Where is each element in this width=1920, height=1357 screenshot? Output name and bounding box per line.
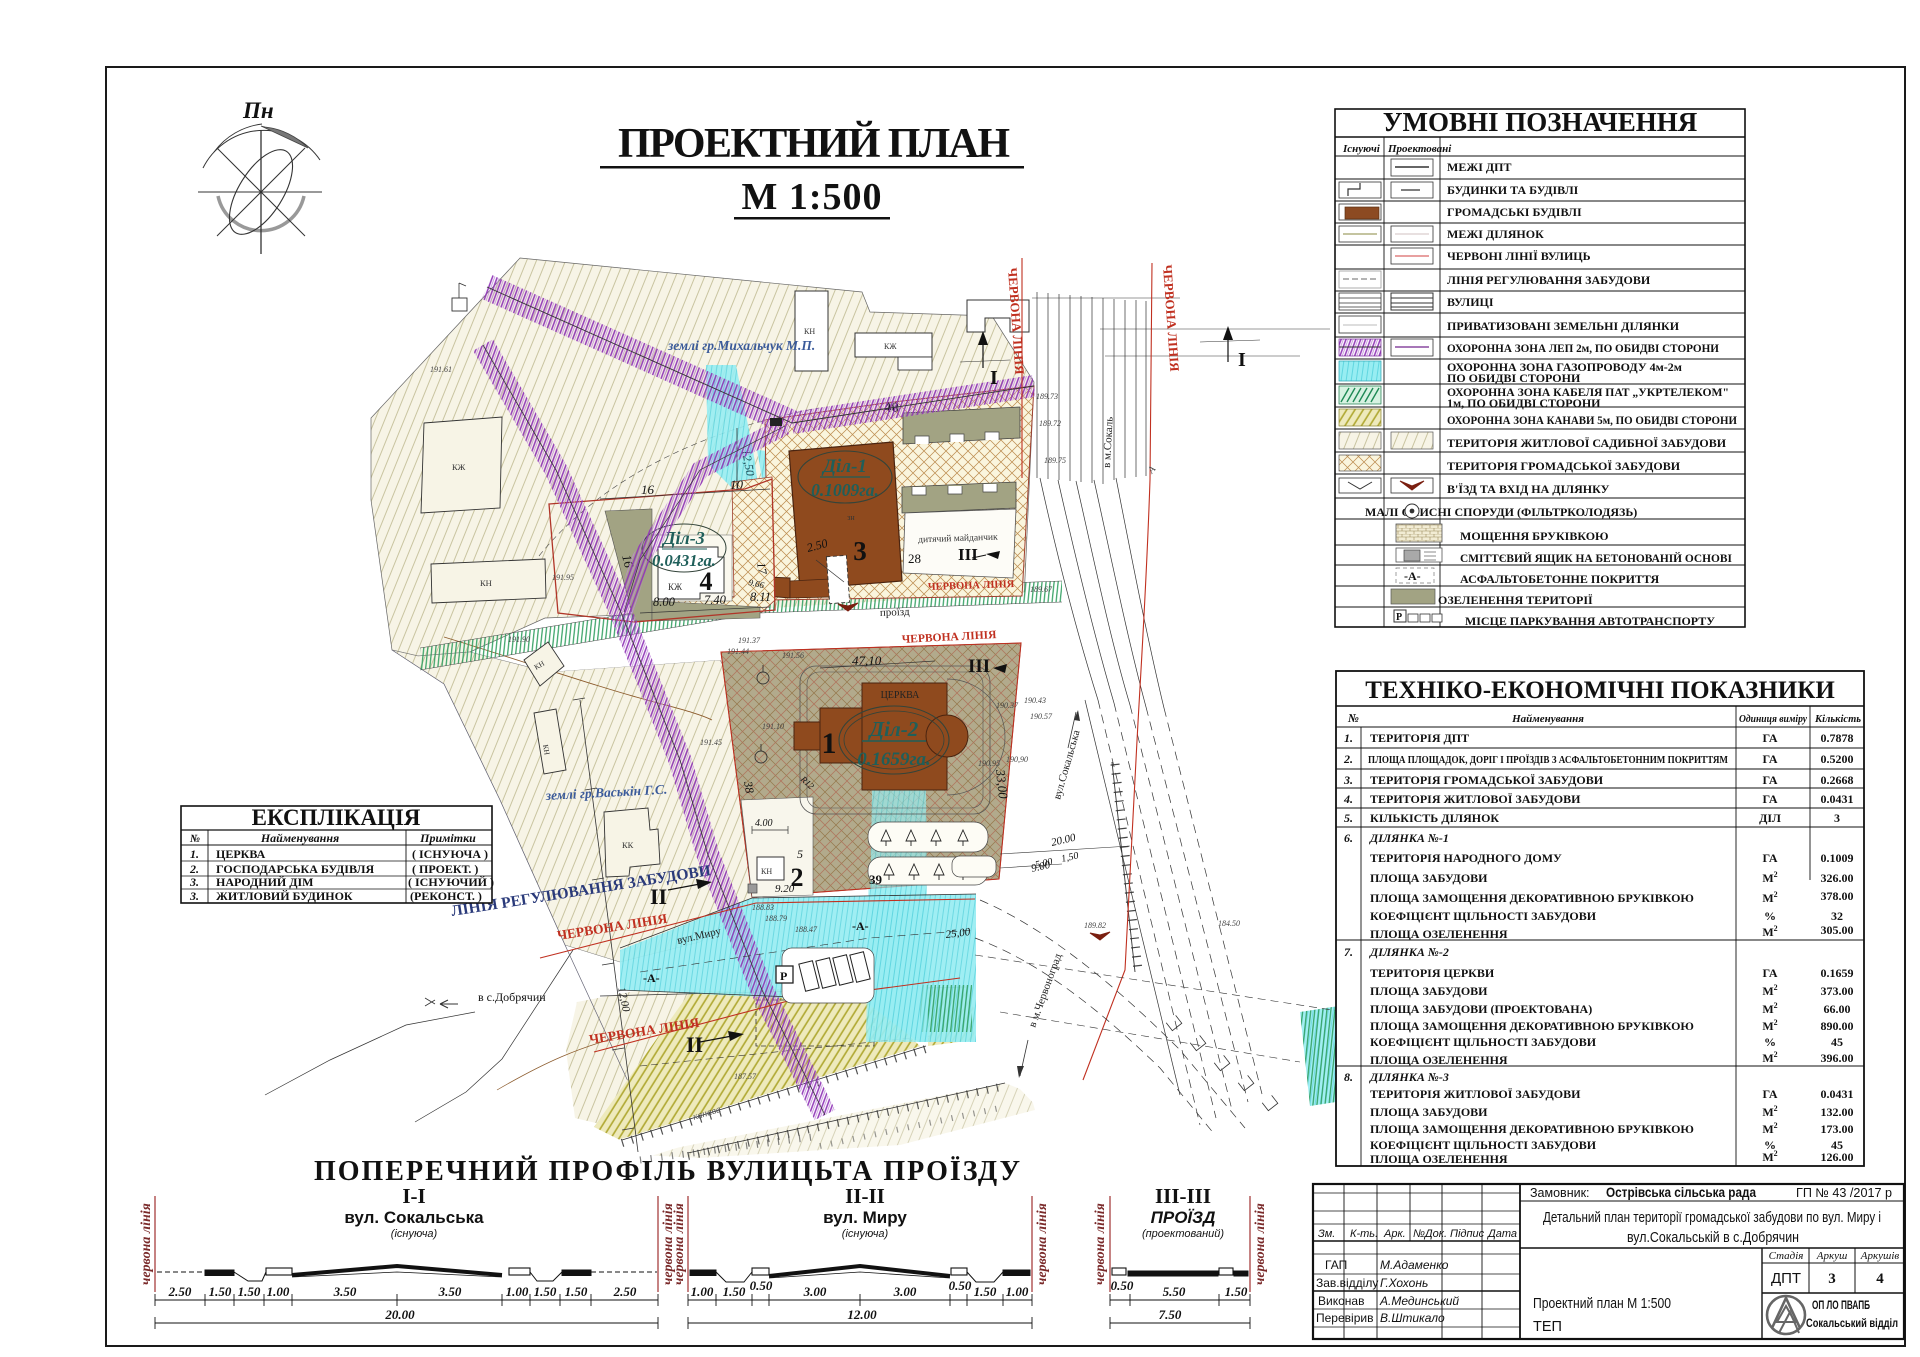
svg-text:5.: 5. xyxy=(1344,811,1353,825)
svg-text:К-ть.: К-ть. xyxy=(1350,1228,1378,1240)
svg-text:32: 32 xyxy=(1831,909,1843,923)
svg-text:189.67: 189.67 xyxy=(1030,585,1053,594)
svg-text:Острівська сільська рада: Острівська сільська рада xyxy=(1606,1184,1756,1200)
svg-text:1.50: 1.50 xyxy=(974,1284,997,1299)
svg-text:Зм.: Зм. xyxy=(1318,1228,1335,1240)
svg-text:-А-: -А- xyxy=(643,971,660,985)
svg-text:ПЛОЩА ЗАМОЩЕННЯ ДЕКОРАТИВНОЮ: ПЛОЩА ЗАМОЩЕННЯ ДЕКОРАТИВНОЮ БРУКІВКОЮ xyxy=(1370,1122,1694,1136)
svg-text:ІІІ: ІІІ xyxy=(968,656,990,677)
svg-text:191.45: 191.45 xyxy=(700,738,722,747)
svg-text:1.50: 1.50 xyxy=(565,1284,588,1299)
svg-text:ТЕРИТОРІЯ НАРОДНОГО ДОМУ: ТЕРИТОРІЯ НАРОДНОГО ДОМУ xyxy=(1370,851,1562,865)
svg-text:4: 4 xyxy=(1876,1271,1884,1287)
svg-text:ПРОЇЗД: ПРОЇЗД xyxy=(1151,1208,1216,1227)
svg-text:Діл-2: Діл-2 xyxy=(868,717,919,741)
svg-text:ТЕРИТОРІЯ ГРОМАДСЬКОЇ ЗАБУДОВ: ТЕРИТОРІЯ ГРОМАДСЬКОЇ ЗАБУДОВИ xyxy=(1447,459,1681,473)
svg-text:Г.Хохонь: Г.Хохонь xyxy=(1380,1276,1428,1290)
svg-text:191.37: 191.37 xyxy=(738,636,761,645)
svg-text:3: 3 xyxy=(853,536,867,566)
svg-text:188.79: 188.79 xyxy=(765,914,787,923)
svg-text:В'ЇЗД ТА ВХІД НА ДІЛЯНКУ: В'ЇЗД ТА ВХІД НА ДІЛЯНКУ xyxy=(1447,482,1610,496)
svg-text:червона лінія: червона лінія xyxy=(1253,1203,1268,1285)
svg-text:( ІСНУЮЧА ): ( ІСНУЮЧА ) xyxy=(412,847,488,861)
svg-text:5.50: 5.50 xyxy=(1163,1284,1186,1299)
svg-text:НАРОДНИЙ ДІМ: НАРОДНИЙ ДІМ xyxy=(216,875,314,889)
svg-text:1.00: 1.00 xyxy=(506,1284,529,1299)
svg-text:вул. Сокальська: вул. Сокальська xyxy=(344,1208,484,1227)
svg-text:(існуюча): (існуюча) xyxy=(842,1228,889,1240)
svg-text:39: 39 xyxy=(869,872,883,887)
svg-text:1.: 1. xyxy=(1344,731,1353,745)
svg-text:3.: 3. xyxy=(1343,773,1353,787)
svg-text:Діл-1: Діл-1 xyxy=(821,456,867,477)
svg-text:ЦЕРКВА: ЦЕРКВА xyxy=(881,690,921,701)
svg-text:СМІТТЄВИЙ ЯЩИК НА БЕТОНОВАНІЙ: СМІТТЄВИЙ ЯЩИК НА БЕТОНОВАНІЙ ОСНОВІ xyxy=(1460,551,1732,565)
svg-text:КК: КК xyxy=(622,840,634,850)
svg-text:І: І xyxy=(990,367,998,389)
svg-text:ЛІНІЯ РЕГУЛЮВАННЯ ЗАБУДОВИ: ЛІНІЯ РЕГУЛЮВАННЯ ЗАБУДОВИ xyxy=(1447,273,1651,287)
svg-text:191.90: 191.90 xyxy=(508,635,530,644)
svg-text:1.00: 1.00 xyxy=(691,1284,714,1299)
svg-text:ГА: ГА xyxy=(1763,792,1778,806)
svg-text:№Док.: №Док. xyxy=(1413,1228,1447,1240)
svg-text:КОЕФІЦІЄНТ ЩІЛЬНОСТІ ЗАБУДОВ: КОЕФІЦІЄНТ ЩІЛЬНОСТІ ЗАБУДОВИ xyxy=(1370,1035,1597,1049)
svg-text:УМОВНІ ПОЗНАЧЕННЯ: УМОВНІ ПОЗНАЧЕННЯ xyxy=(1383,107,1698,137)
svg-text:1.00: 1.00 xyxy=(267,1284,290,1299)
svg-text:Аркушів: Аркушів xyxy=(1860,1250,1900,1262)
svg-text:0.50: 0.50 xyxy=(1111,1278,1134,1293)
svg-text:Примітки: Примітки xyxy=(419,831,476,845)
svg-text:8.11: 8.11 xyxy=(750,590,771,604)
svg-text:ГА: ГА xyxy=(1763,731,1778,745)
svg-text:8.00: 8.00 xyxy=(653,595,676,609)
svg-text:Найменування: Найменування xyxy=(1511,713,1584,725)
svg-text:ТЕРИТОРІЯ ДПТ: ТЕРИТОРІЯ ДПТ xyxy=(1370,731,1469,745)
svg-text:190,90: 190,90 xyxy=(1006,755,1028,764)
svg-text:(проектований): (проектований) xyxy=(1142,1228,1224,1240)
svg-text:184.50: 184.50 xyxy=(1218,919,1240,928)
svg-text:191.10: 191.10 xyxy=(762,722,784,731)
svg-text:9.20: 9.20 xyxy=(775,883,795,895)
svg-text:КІЛЬКІСТЬ ДІЛЯНОК: КІЛЬКІСТЬ ДІЛЯНОК xyxy=(1370,811,1499,825)
svg-text:ІІ-ІІ: ІІ-ІІ xyxy=(845,1184,885,1208)
svg-text:ОХОРОННА ЗОНА ЛЕП 2м, ПО ОБИД: ОХОРОННА ЗОНА ЛЕП 2м, ПО ОБИДВІ СТОРОНИ xyxy=(1447,341,1720,355)
svg-text:1.00: 1.00 xyxy=(1006,1284,1029,1299)
svg-text:Р: Р xyxy=(780,969,787,983)
svg-text:ТЕРИТОРІЯ ГРОМАДСЬКОЇ ЗАБУДОВ: ТЕРИТОРІЯ ГРОМАДСЬКОЇ ЗАБУДОВИ xyxy=(1370,773,1604,787)
svg-text:( ІСНУЮЧИЙ ): ( ІСНУЮЧИЙ ) xyxy=(408,875,494,889)
svg-text:1м, ПО ОБИДВІ СТОРОНИ: 1м, ПО ОБИДВІ СТОРОНИ xyxy=(1447,396,1601,410)
svg-text:М.Адаменко: М.Адаменко xyxy=(1380,1258,1449,1272)
svg-text:ПОПЕРЕЧНИЙ ПРОФІЛЬ ВУЛИЦЬТА: ПОПЕРЕЧНИЙ ПРОФІЛЬ ВУЛИЦЬТА ПРОЇЗДУ xyxy=(314,1156,1022,1187)
svg-text:ПЛОЩА ОЗЕЛЕНЕННЯ: ПЛОЩА ОЗЕЛЕНЕННЯ xyxy=(1370,1152,1508,1166)
svg-text:ТЕХНІКО-ЕКОНОМІЧНІ ПОКАЗНИКИ: ТЕХНІКО-ЕКОНОМІЧНІ ПОКАЗНИКИ xyxy=(1365,677,1835,704)
svg-text:187.57: 187.57 xyxy=(734,1072,757,1081)
svg-text:ЦЕРКВА: ЦЕРКВА xyxy=(216,847,266,861)
svg-text:КОЕФІЦІЄНТ ЩІЛЬНОСТІ ЗАБУДОВ: КОЕФІЦІЄНТ ЩІЛЬНОСТІ ЗАБУДОВИ xyxy=(1370,909,1597,923)
svg-text:Пн: Пн xyxy=(242,98,274,123)
svg-text:3: 3 xyxy=(1828,1271,1836,1287)
svg-text:Виконав: Виконав xyxy=(1318,1294,1364,1308)
svg-text:0.1659: 0.1659 xyxy=(1821,966,1854,980)
svg-text:ДІЛЯНКА №-1: ДІЛЯНКА №-1 xyxy=(1369,831,1449,845)
svg-text:2.50: 2.50 xyxy=(168,1284,192,1299)
svg-text:ПО ОБИДВІ СТОРОНИ: ПО ОБИДВІ СТОРОНИ xyxy=(1447,371,1581,385)
svg-text:3.00: 3.00 xyxy=(803,1284,827,1299)
svg-text:3.50: 3.50 xyxy=(438,1284,462,1299)
svg-text:1.50: 1.50 xyxy=(723,1284,746,1299)
svg-text:ГА: ГА xyxy=(1763,966,1778,980)
svg-text:ЕКСПЛІКАЦІЯ: ЕКСПЛІКАЦІЯ xyxy=(252,805,421,830)
svg-text:190.43: 190.43 xyxy=(1024,696,1046,705)
svg-text:188.83: 188.83 xyxy=(752,903,774,912)
svg-text:ПЛОЩА ЗАБУДОВИ: ПЛОЩА ЗАБУДОВИ xyxy=(1370,871,1488,885)
svg-text:ПРИВАТИЗОВАНІ ЗЕМЕЛЬНІ ДІЛЯНКИ: ПРИВАТИЗОВАНІ ЗЕМЕЛЬНІ ДІЛЯНКИ xyxy=(1447,319,1680,333)
svg-text:А: А xyxy=(1145,463,1159,476)
svg-text:І-І: І-І xyxy=(402,1184,425,1208)
svg-text:4.00: 4.00 xyxy=(755,818,773,829)
svg-text:38: 38 xyxy=(741,779,757,794)
svg-text:вул.Сокальська: вул.Сокальська xyxy=(1051,729,1082,801)
svg-text:16: 16 xyxy=(641,482,655,497)
svg-text:ГП № 43 /2017 р: ГП № 43 /2017 р xyxy=(1796,1186,1892,1200)
svg-text:ПЛОЩА ЗАМОЩЕННЯ ДЕКОРАТИВНОЮ: ПЛОЩА ЗАМОЩЕННЯ ДЕКОРАТИВНОЮ БРУКІВКОЮ xyxy=(1370,1019,1694,1033)
svg-text:396.00: 396.00 xyxy=(1821,1051,1854,1065)
svg-text:Стадія: Стадія xyxy=(1769,1250,1804,1262)
svg-text:в м.Сокаль: в м.Сокаль xyxy=(1101,416,1116,468)
svg-text:6.: 6. xyxy=(1344,831,1353,845)
svg-text:Зав.відділу: Зав.відділу xyxy=(1316,1276,1378,1290)
svg-text:66.00: 66.00 xyxy=(1824,1002,1851,1016)
svg-text:0.5200: 0.5200 xyxy=(1821,752,1854,766)
svg-text:червона лінія: червона лінія xyxy=(139,1203,154,1285)
svg-text:ОП ЛО ПВАПБ: ОП ЛО ПВАПБ xyxy=(1812,1298,1870,1312)
svg-text:в с.Добрячин: в с.Добрячин xyxy=(478,990,546,1004)
svg-text:(існуюча): (існуюча) xyxy=(391,1228,438,1240)
svg-text:0.0431га.: 0.0431га. xyxy=(652,551,716,570)
svg-text:1.50: 1.50 xyxy=(534,1284,557,1299)
svg-text:%: % xyxy=(1764,1035,1776,1049)
svg-text:БУДИНКИ ТА БУДІВЛІ: БУДИНКИ ТА БУДІВЛІ xyxy=(1447,183,1579,197)
svg-text:47,10: 47,10 xyxy=(852,653,882,668)
svg-text:ТЕРИТОРІЯ ЦЕРКВИ: ТЕРИТОРІЯ ЦЕРКВИ xyxy=(1370,966,1495,980)
svg-text:373.00: 373.00 xyxy=(1821,984,1854,998)
svg-text:1.50: 1.50 xyxy=(238,1284,261,1299)
svg-text:%: % xyxy=(1764,909,1776,923)
svg-text:КН: КН xyxy=(804,327,815,336)
svg-text:ЧЕРВОНІ ЛІНІЇ ВУЛИЦЬ: ЧЕРВОНІ ЛІНІЇ ВУЛИЦЬ xyxy=(1447,249,1591,263)
svg-text:червона лінія: червона лінія xyxy=(672,1203,687,1285)
svg-text:( ПРОЕКТ. ): ( ПРОЕКТ. ) xyxy=(412,862,478,876)
svg-text:1: 1 xyxy=(822,727,837,760)
svg-text:ІІ: ІІ xyxy=(650,884,667,909)
svg-text:землі гр.Михальчук М.П.: землі гр.Михальчук М.П. xyxy=(667,338,815,353)
svg-text:ГА: ГА xyxy=(1763,752,1778,766)
svg-text:ОЗЕЛЕНЕННЯ ТЕРИТОРІЇ: ОЗЕЛЕНЕННЯ ТЕРИТОРІЇ xyxy=(1438,593,1593,607)
svg-text:ГАП: ГАП xyxy=(1325,1258,1347,1272)
svg-text:188.47: 188.47 xyxy=(795,925,818,934)
svg-text:ПЛОЩА ЗАМОЩЕННЯ ДЕКОРАТИВНОЮ: ПЛОЩА ЗАМОЩЕННЯ ДЕКОРАТИВНОЮ БРУКІВКОЮ xyxy=(1370,891,1694,905)
svg-text:Арк.: Арк. xyxy=(1383,1228,1406,1240)
svg-text:вул.Сокальській в с.Добрячин: вул.Сокальській в с.Добрячин xyxy=(1627,1230,1799,1246)
svg-text:190.57: 190.57 xyxy=(1030,712,1053,721)
svg-text:126.00: 126.00 xyxy=(1821,1150,1854,1164)
svg-text:132.00: 132.00 xyxy=(1821,1105,1854,1119)
svg-text:2.50: 2.50 xyxy=(613,1284,637,1299)
svg-text:0.1009: 0.1009 xyxy=(1821,851,1854,865)
svg-text:Дата: Дата xyxy=(1486,1228,1517,1240)
svg-text:ЖИТЛОВИЙ БУДИНОК: ЖИТЛОВИЙ БУДИНОК xyxy=(216,889,353,903)
svg-text:АСФАЛЬТОБЕТОННЕ ПОКРИТТЯ: АСФАЛЬТОБЕТОННЕ ПОКРИТТЯ xyxy=(1460,572,1659,586)
svg-text:Проектовані: Проектовані xyxy=(1387,143,1452,155)
svg-text:1,50: 1,50 xyxy=(1060,850,1080,865)
svg-text:ПЛОЩА ОЗЕЛЕНЕННЯ: ПЛОЩА ОЗЕЛЕНЕННЯ xyxy=(1370,927,1508,941)
svg-text:0.1659га.: 0.1659га. xyxy=(857,749,931,770)
svg-text:190.95: 190.95 xyxy=(978,759,1000,768)
svg-text:1.: 1. xyxy=(190,847,199,861)
svg-text:ПЛОЩА ЗАБУДОВИ (ПРОЕКТОВАНА: ПЛОЩА ЗАБУДОВИ (ПРОЕКТОВАНА) xyxy=(1370,1002,1592,1016)
svg-text:Одиниця виміру: Одиниця виміру xyxy=(1739,714,1808,725)
svg-text:Замовник:: Замовник: xyxy=(1530,1186,1590,1200)
svg-text:ГА: ГА xyxy=(1763,1087,1778,1101)
svg-text:проїзд: проїзд xyxy=(880,606,910,619)
svg-text:4: 4 xyxy=(700,567,713,596)
svg-text:КН: КН xyxy=(761,867,772,876)
svg-text:326.00: 326.00 xyxy=(1821,871,1854,885)
svg-text:Проектний план М 1:500: Проектний план М 1:500 xyxy=(1533,1296,1671,1312)
svg-text:І: І xyxy=(1238,349,1246,371)
svg-text:Перевірив: Перевірив xyxy=(1316,1311,1373,1325)
svg-text:3.: 3. xyxy=(189,889,199,903)
svg-text:ПЛОЩА ЗАБУДОВИ: ПЛОЩА ЗАБУДОВИ xyxy=(1370,1105,1488,1119)
svg-text:0.0431: 0.0431 xyxy=(1821,792,1854,806)
svg-text:МЕЖІ ДІЛЯНОК: МЕЖІ ДІЛЯНОК xyxy=(1447,227,1544,241)
svg-text:1.50: 1.50 xyxy=(209,1284,232,1299)
svg-text:3: 3 xyxy=(1834,811,1840,825)
svg-text:7.40: 7.40 xyxy=(704,593,727,607)
svg-text:20.00: 20.00 xyxy=(1050,832,1077,849)
svg-text:890.00: 890.00 xyxy=(1821,1019,1854,1033)
svg-text:(РЕКОНСТ. ): (РЕКОНСТ. ) xyxy=(410,889,482,903)
svg-text:ДІЛ: ДІЛ xyxy=(1759,811,1781,825)
svg-text:ТЕРИТОРІЯ ЖИТЛОВОЇ САДИБНОЇ ЗА: ТЕРИТОРІЯ ЖИТЛОВОЇ САДИБНОЇ ЗАБУДОВИ xyxy=(1447,436,1727,450)
svg-text:МЕЖІ ДПТ: МЕЖІ ДПТ xyxy=(1447,160,1511,174)
svg-text:КН: КН xyxy=(480,578,492,588)
svg-text:33,00: 33,00 xyxy=(993,768,1011,800)
svg-text:4.: 4. xyxy=(1343,792,1353,806)
svg-text:28: 28 xyxy=(908,551,921,566)
svg-text:5: 5 xyxy=(797,847,803,861)
svg-text:ІІІ-ІІІ: ІІІ-ІІІ xyxy=(1155,1184,1211,1208)
svg-text:М 1:500: М 1:500 xyxy=(741,176,882,218)
svg-text:Найменування: Найменування xyxy=(260,831,339,845)
svg-text:КЖ: КЖ xyxy=(452,462,466,472)
svg-text:ГА: ГА xyxy=(1763,851,1778,865)
svg-text:ГРОМАДСЬКІ БУДІВЛІ: ГРОМАДСЬКІ БУДІВЛІ xyxy=(1447,205,1582,219)
svg-text:191.56: 191.56 xyxy=(782,651,804,660)
svg-text:ОХОРОННА ЗОНА КАНАВИ 5м, ПО: ОХОРОННА ЗОНА КАНАВИ 5м, ПО ОБИДВІ СТОРО… xyxy=(1447,413,1738,427)
svg-text:2.: 2. xyxy=(189,862,199,876)
svg-text:ПЛОЩА ЗАБУДОВИ: ПЛОЩА ЗАБУДОВИ xyxy=(1370,984,1488,998)
svg-text:вул. Миру: вул. Миру xyxy=(823,1208,907,1227)
svg-text:Підпис: Підпис xyxy=(1450,1228,1485,1240)
svg-text:0.1009га.: 0.1009га. xyxy=(811,480,879,500)
svg-text:КЖ: КЖ xyxy=(884,342,897,351)
svg-text:378.00: 378.00 xyxy=(1821,889,1854,903)
svg-text:Кількість: Кількість xyxy=(1814,714,1861,725)
svg-text:20.00: 20.00 xyxy=(384,1307,415,1322)
svg-text:зн: зн xyxy=(847,513,855,522)
svg-text:ІІІ: ІІІ xyxy=(958,545,978,564)
svg-text:ГОСПОДАРСЬКА БУДІВЛЯ: ГОСПОДАРСЬКА БУДІВЛЯ xyxy=(216,862,374,876)
svg-text:Існуючі: Існуючі xyxy=(1342,143,1381,155)
svg-text:189.82: 189.82 xyxy=(1084,921,1106,930)
svg-text:МОЩЕННЯ БРУКІВКОЮ: МОЩЕННЯ БРУКІВКОЮ xyxy=(1460,529,1609,543)
svg-text:8.: 8. xyxy=(1344,1070,1353,1084)
svg-text:червона лінія: червона лінія xyxy=(1035,1203,1050,1285)
svg-text:191.61: 191.61 xyxy=(430,365,452,374)
svg-text:3.50: 3.50 xyxy=(333,1284,357,1299)
svg-text:ГА: ГА xyxy=(1763,773,1778,787)
svg-text:190.37: 190.37 xyxy=(996,701,1019,710)
svg-text:№: № xyxy=(1347,711,1359,725)
svg-text:189.73: 189.73 xyxy=(1036,392,1058,401)
svg-text:ДПТ: ДПТ xyxy=(1771,1270,1801,1287)
svg-text:189.75: 189.75 xyxy=(1044,456,1066,465)
svg-text:-А-: -А- xyxy=(852,919,869,933)
svg-text:-А-: -А- xyxy=(1404,569,1421,583)
svg-text:ДІЛЯНКА №-2: ДІЛЯНКА №-2 xyxy=(1369,945,1449,959)
svg-text:Р: Р xyxy=(1396,612,1402,623)
svg-text:ІІ: ІІ xyxy=(686,1032,703,1057)
svg-text:ТЕРИТОРІЯ ЖИТЛОВОЇ ЗАБУДОВИ: ТЕРИТОРІЯ ЖИТЛОВОЇ ЗАБУДОВИ xyxy=(1370,792,1581,806)
svg-text:12.00: 12.00 xyxy=(847,1307,877,1322)
svg-text:173.00: 173.00 xyxy=(1821,1122,1854,1136)
svg-text:0.50: 0.50 xyxy=(750,1278,773,1293)
svg-text:№: № xyxy=(189,833,200,845)
svg-text:ТЕП: ТЕП xyxy=(1533,1319,1562,1335)
svg-text:3.: 3. xyxy=(189,875,199,889)
svg-text:ПРОЕКТНИЙ ПЛАН: ПРОЕКТНИЙ ПЛАН xyxy=(618,121,1010,167)
svg-text:7.: 7. xyxy=(1344,945,1353,959)
svg-text:3.00: 3.00 xyxy=(893,1284,917,1299)
svg-text:ПЛОЩА ОЗЕЛЕНЕННЯ: ПЛОЩА ОЗЕЛЕНЕННЯ xyxy=(1370,1053,1508,1067)
svg-text:КЖ: КЖ xyxy=(668,582,683,592)
svg-text:ПЛОЩА ПЛОЩАДОК, ДОРІГ І ПРОЇЗД: ПЛОЩА ПЛОЩАДОК, ДОРІГ І ПРОЇЗДІВ З АСФАЛ… xyxy=(1368,753,1729,766)
svg-text:В.Штикало: В.Штикало xyxy=(1380,1311,1445,1325)
svg-text:ДІЛЯНКА №-3: ДІЛЯНКА №-3 xyxy=(1369,1070,1449,1084)
svg-text:Аркуш: Аркуш xyxy=(1816,1250,1848,1262)
svg-text:1.50: 1.50 xyxy=(1225,1284,1248,1299)
svg-text:0.2668: 0.2668 xyxy=(1821,773,1854,787)
svg-text:191.95: 191.95 xyxy=(552,573,574,582)
svg-text:0.0431: 0.0431 xyxy=(1821,1087,1854,1101)
svg-text:191.44: 191.44 xyxy=(727,647,749,656)
svg-text:червона лінія: червона лінія xyxy=(1093,1203,1108,1285)
svg-text:2.: 2. xyxy=(1343,752,1353,766)
svg-text:ВУЛИЦІ: ВУЛИЦІ xyxy=(1447,295,1494,309)
svg-text:Сокальський відділ: Сокальський відділ xyxy=(1806,1316,1898,1330)
svg-text:0.50: 0.50 xyxy=(949,1278,972,1293)
svg-text:КОЕФІЦІЄНТ ЩІЛЬНОСТІ ЗАБУДОВ: КОЕФІЦІЄНТ ЩІЛЬНОСТІ ЗАБУДОВИ xyxy=(1370,1138,1597,1152)
svg-text:189.72: 189.72 xyxy=(1039,419,1061,428)
svg-text:Детальний план території грома: Детальний план території громадської заб… xyxy=(1543,1210,1881,1226)
svg-text:МІСЦЕ ПАРКУВАННЯ АВТОТРАНСПОРТ: МІСЦЕ ПАРКУВАННЯ АВТОТРАНСПОРТУ xyxy=(1465,614,1715,628)
svg-text:45: 45 xyxy=(1831,1035,1843,1049)
svg-text:0.7878: 0.7878 xyxy=(1821,731,1854,745)
svg-text:7.50: 7.50 xyxy=(1159,1307,1182,1322)
svg-text:305.00: 305.00 xyxy=(1821,923,1854,937)
svg-text:ТЕРИТОРІЯ ЖИТЛОВОЇ ЗАБУДОВИ: ТЕРИТОРІЯ ЖИТЛОВОЇ ЗАБУДОВИ xyxy=(1370,1087,1581,1101)
svg-text:А.Мединський: А.Мединський xyxy=(1379,1294,1459,1308)
